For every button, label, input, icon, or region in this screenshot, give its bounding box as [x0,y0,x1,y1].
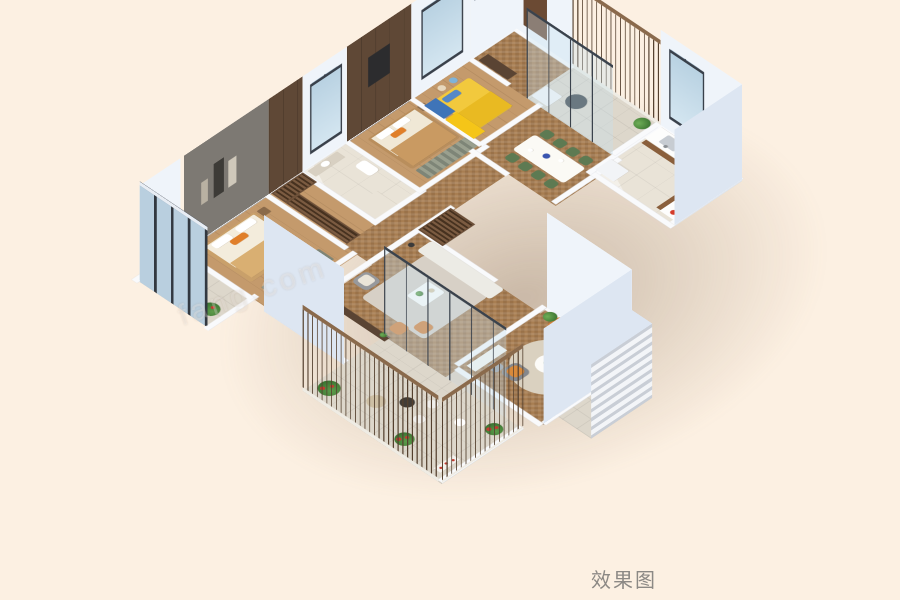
apartment-floorplan [126,30,900,552]
floorplan-render-stage: fang.com 效果图 [0,0,900,600]
caption-rendering-label: 效果图 [591,564,657,593]
isometric-scene [0,0,900,600]
